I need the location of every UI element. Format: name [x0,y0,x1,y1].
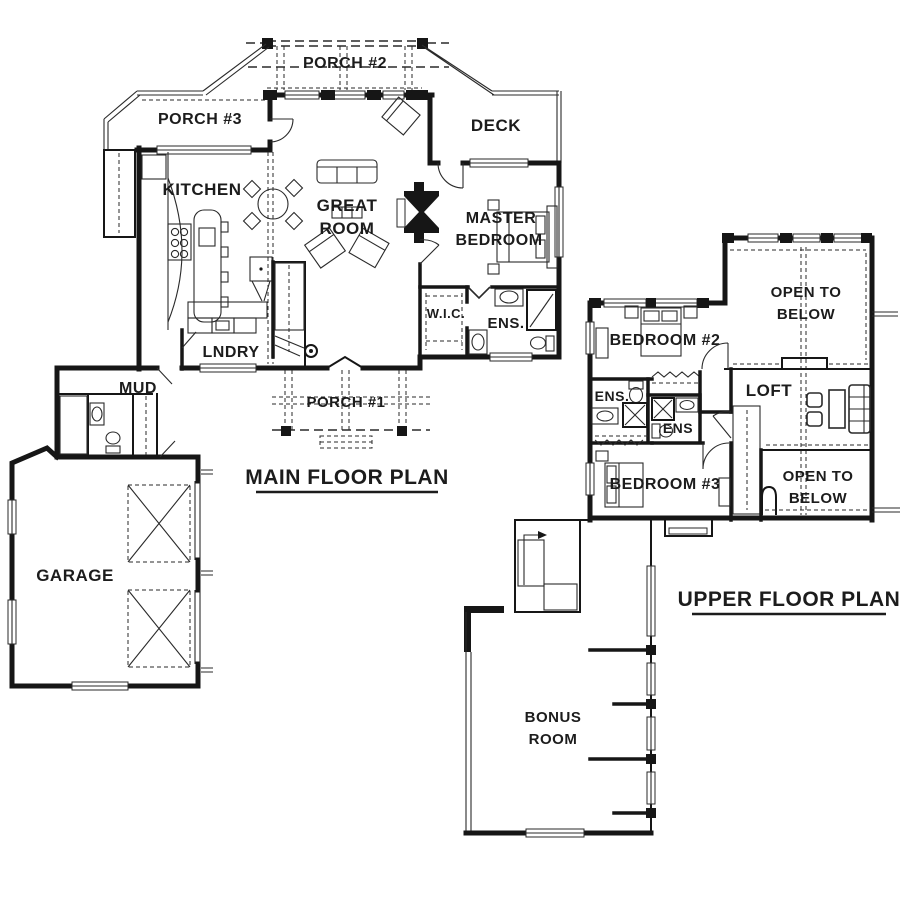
deck-door [438,163,463,188]
porch1-label: PORCH #1 [306,394,385,411]
garage: GARAGE [8,470,213,690]
desk [719,478,730,506]
porch3-door [270,119,293,142]
porch-3: PORCH #3 [104,44,269,150]
kitchen-island [194,210,221,322]
toilet-tank [546,336,554,351]
laundry: LNDRY [188,302,267,361]
wic-label: W.I.C. [427,306,465,321]
porch-2: PORCH #2 [246,38,449,90]
ens-left: ENS. [590,379,652,443]
deck: DECK [422,45,561,163]
pillow [644,311,659,321]
otb-top-label-1: OPEN TO [771,284,842,301]
deck-label: DECK [471,116,521,135]
porch2-label: PORCH #2 [303,55,387,72]
bedroom3-door [703,443,729,469]
island-sink [199,228,215,246]
otb-bottom-label-1: OPEN TO [783,468,854,485]
wic: W.I.C. [426,293,465,350]
loft-table [829,390,845,428]
dryer [234,318,256,333]
master-label-2: BEDROOM [455,232,542,249]
washer [212,318,234,333]
mud-toilet [106,432,120,444]
great-room-label-1: GREAT [317,196,378,215]
pillow [662,311,677,321]
ottoman [807,393,822,407]
open-to-below-bottom: OPEN TO BELOW [762,445,872,510]
upper-floor-title: UPPER FLOOR PLAN [678,588,900,611]
main-stairs [275,263,363,368]
bonus-label-1: BONUS [525,709,582,726]
sink [680,401,694,410]
main-floor-plan: PORCH #2 PORCH #3 DECK [8,38,563,690]
ottoman [807,412,822,426]
floor-plan-page: PORCH #2 PORCH #3 DECK [0,0,900,900]
bifold-door [468,287,490,298]
otb-bottom-label-2: BELOW [789,490,848,507]
mud-room: MUD [57,380,175,457]
exterior-stairs [104,150,135,237]
toilet-tank [652,424,660,438]
ens-right: ENS [648,395,703,443]
bonus-label-2: ROOM [529,731,578,748]
sofa [317,160,377,183]
ens-master: ENS. [469,289,556,354]
porch2-post [262,38,273,49]
nightstand [488,200,499,210]
lndry-label: LNDRY [202,344,259,361]
loft: LOFT [713,369,870,438]
porch-1: PORCH #1 [272,370,430,448]
lndry-door [182,332,196,348]
otb-top-label-2: BELOW [777,306,836,323]
entry-doors [327,357,363,368]
bedroom-3: BEDROOM #3 [595,436,730,507]
mud-stairs [60,396,87,454]
main-exterior-walls [12,95,559,686]
loft-door [713,412,731,438]
floor-plan-drawing: PORCH #2 PORCH #3 DECK [0,0,900,900]
mud-door [157,368,172,384]
sink [500,291,518,303]
bonus-stairs-run1 [518,540,544,586]
mud-label: MUD [119,380,157,397]
bedroom3-label: BEDROOM #3 [610,476,721,493]
bedroom2-label: BEDROOM #2 [610,332,721,349]
upper-floor-plan: OPEN TO BELOW BEDROOM #2 [464,233,900,837]
chimney [782,358,827,369]
vanity [592,408,618,424]
upper-stairs [731,406,776,520]
fridge [142,155,166,179]
bonus-stairs-run2 [544,584,577,610]
porch3-label: PORCH #3 [158,111,242,128]
closet-front [652,372,700,377]
mud-sink [92,407,102,421]
nightstand [684,306,697,318]
main-floor-title: MAIN FLOOR PLAN [245,466,448,489]
sink [597,411,613,421]
toilet [630,388,643,403]
ens-master-label: ENS. [487,315,524,332]
nightstand [488,264,499,274]
toilet [531,337,546,349]
nightstand [625,306,638,318]
nightstand [596,451,608,461]
great-room-label-2: ROOM [320,219,375,238]
loft-label: LOFT [746,381,792,400]
ens-right-label: ENS [663,420,693,436]
master-label-1: MASTER [466,210,537,227]
sink2 [472,334,484,350]
bonus-room: BONUS ROOM [464,518,656,837]
ens-left-label: ENS. [595,388,630,404]
fireplace [397,182,439,243]
master-bedroom: MASTER BEDROOM [438,163,557,274]
kitchen-label: KITCHEN [162,180,241,199]
dresser [596,328,608,358]
garage-label: GARAGE [36,566,114,585]
kitchen: KITCHEN [142,152,272,330]
great-room: GREAT ROOM [270,97,420,268]
stair-direction-arrow [538,531,547,539]
